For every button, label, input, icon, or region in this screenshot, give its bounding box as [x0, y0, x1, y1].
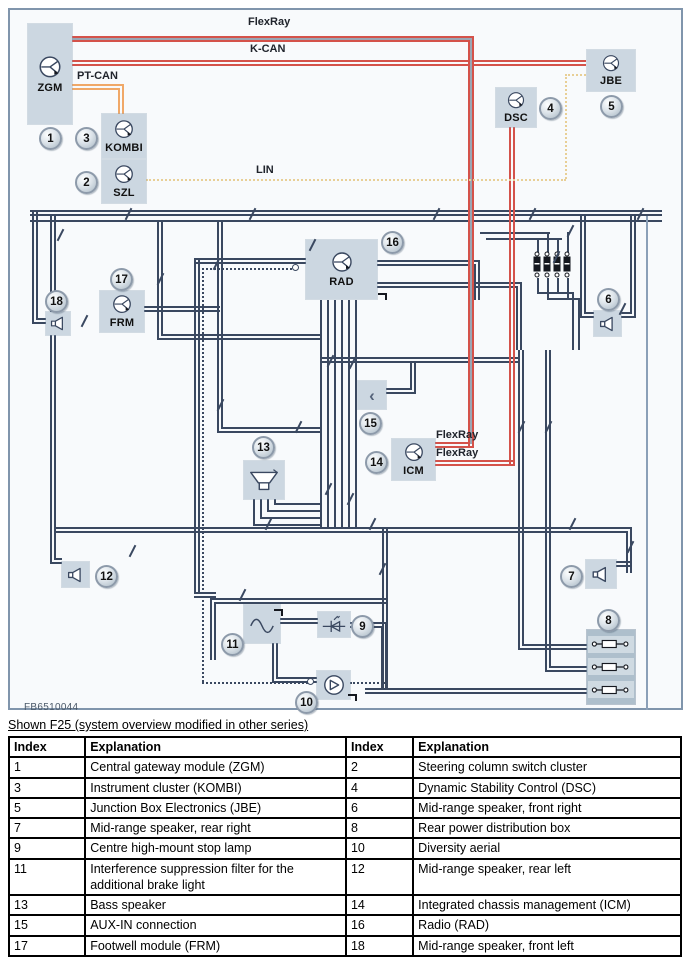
- explanation-cell: Mid-range speaker, rear left: [413, 859, 681, 896]
- fuse-row: [588, 636, 634, 653]
- control-unit-icon: [111, 294, 133, 316]
- index-cell: 8: [346, 818, 413, 838]
- index-cell: 9: [9, 838, 85, 858]
- sine-wave-icon: [248, 612, 276, 636]
- index-cell: 5: [9, 798, 85, 818]
- fuse-icon: [589, 683, 633, 697]
- explanation-cell: Integrated chassis management (ICM): [413, 895, 681, 915]
- wire-segment: [545, 350, 587, 672]
- wire-segment: [486, 238, 562, 240]
- wire-segment: [377, 282, 522, 350]
- wire-segment: [434, 460, 515, 466]
- explanation-cell: Dynamic Stability Control (DSC): [413, 778, 681, 798]
- legend-table: IndexExplanationIndexExplanation 1Centra…: [8, 736, 682, 957]
- wire-segment: [557, 278, 559, 292]
- control-unit-icon: [403, 442, 425, 464]
- index-badge-9: 9: [351, 615, 374, 638]
- index-cell: 6: [346, 798, 413, 818]
- module-rad: RAD: [306, 240, 377, 299]
- amplifier-icon: [321, 673, 347, 697]
- speaker-icon: [66, 566, 86, 584]
- wire-segment: [157, 222, 320, 340]
- figure-id: FB6510044: [24, 702, 78, 713]
- module-jbe: JBE: [587, 50, 635, 91]
- explanation-cell: Mid-range speaker, front left: [413, 936, 681, 956]
- index-badge-3: 3: [75, 127, 98, 150]
- explanation-cell: Instrument cluster (KOMBI): [85, 778, 346, 798]
- module-kombi: KOMBI: [102, 114, 146, 158]
- bus-label-kcan: K-CAN: [250, 43, 285, 55]
- wire-segment: [202, 268, 204, 682]
- speaker-rear-left: [62, 562, 89, 587]
- aux-in-connector: ‹: [358, 381, 386, 409]
- wire-segment: [334, 300, 336, 527]
- bass-speaker-icon: [247, 465, 281, 495]
- table-row: 3Instrument cluster (KOMBI)4Dynamic Stab…: [9, 778, 681, 798]
- index-badge-2: 2: [75, 171, 98, 194]
- module-label: KOMBI: [105, 142, 143, 154]
- wire-segment: [567, 278, 569, 298]
- index-cell: 15: [9, 915, 85, 935]
- module-szl: SZL: [102, 160, 146, 203]
- wire-segment: [202, 682, 308, 684]
- table-row: 7Mid-range speaker, rear right8Rear powe…: [9, 818, 681, 838]
- explanation-cell: Centre high-mount stop lamp: [85, 838, 346, 858]
- index-cell: 13: [9, 895, 85, 915]
- index-badge-1: 1: [39, 127, 62, 150]
- wire-segment: [615, 561, 632, 567]
- table-row: 11Interference suppression filter for th…: [9, 859, 681, 896]
- bus-label-icm-flexray-upper: FlexRay: [436, 429, 478, 441]
- wire-segment: [194, 258, 200, 592]
- wire-segment: [537, 278, 539, 292]
- wire-segment: [146, 179, 566, 181]
- figure-caption: Shown F25 (system overview modified in o…: [8, 718, 308, 732]
- wire-segment: [72, 38, 470, 40]
- wire-terminal: [292, 264, 299, 271]
- module-label: ZGM: [37, 82, 62, 94]
- explanation-cell: Radio (RAD): [413, 915, 681, 935]
- index-badge-10: 10: [295, 691, 318, 714]
- wire-crossing-mark: [81, 315, 89, 327]
- table-row: 9Centre high-mount stop lamp10Diversity …: [9, 838, 681, 858]
- wire-crossing-mark: [567, 225, 575, 237]
- wire-segment: [32, 212, 46, 324]
- index-cell: 11: [9, 859, 85, 896]
- explanation-cell: Steering column switch cluster: [413, 757, 681, 777]
- index-badge-12: 12: [95, 565, 118, 588]
- wire-segment: [537, 292, 572, 294]
- index-cell: 14: [346, 895, 413, 915]
- wire-segment: [320, 300, 322, 527]
- index-cell: 10: [346, 838, 413, 858]
- connector-bracket-mark: [348, 694, 357, 701]
- control-unit-icon: [330, 251, 354, 275]
- wire-segment: [565, 74, 586, 76]
- fuse-row: [588, 681, 634, 698]
- speaker-front-left: [46, 312, 70, 335]
- wire-segment: [578, 298, 580, 350]
- wire-segment: [202, 268, 292, 270]
- explanation-cell: Central gateway module (ZGM): [85, 757, 346, 777]
- index-cell: 4: [346, 778, 413, 798]
- index-badge-14: 14: [365, 451, 388, 474]
- control-unit-icon: [506, 91, 526, 111]
- index-badge-16: 16: [381, 231, 404, 254]
- explanation-cell: Mid-range speaker, front right: [413, 798, 681, 818]
- index-badge-8: 8: [597, 609, 620, 632]
- wire-segment: [355, 300, 357, 527]
- wire-segment: [547, 278, 549, 298]
- wire-segment: [272, 643, 317, 683]
- explanation-cell: Interference suppression filter for the …: [85, 859, 346, 896]
- index-cell: 7: [9, 818, 85, 838]
- module-label: RAD: [329, 276, 353, 288]
- bus-label-icm-flexray-lower: FlexRay: [436, 447, 478, 459]
- module-label: SZL: [113, 187, 134, 199]
- control-unit-icon: [601, 54, 621, 74]
- wire-segment: [72, 60, 586, 66]
- control-unit-icon: [113, 164, 135, 186]
- explanation-cell: Rear power distribution box: [413, 818, 681, 838]
- module-label: ICM: [403, 465, 424, 477]
- page: FlexRay K-CAN PT-CAN LIN FlexRay FlexRay…: [0, 0, 690, 957]
- fuse-row: [588, 658, 634, 675]
- wire-segment: [480, 232, 550, 234]
- wire-segment: [509, 126, 515, 466]
- stop-lamp: [318, 612, 350, 637]
- wire-segment: [620, 216, 636, 318]
- wire-segment: [580, 216, 595, 318]
- module-frm: FRM: [100, 291, 144, 332]
- fuse-icon: [589, 637, 633, 651]
- system-diagram-panel: FlexRay K-CAN PT-CAN LIN FlexRay FlexRay…: [8, 8, 683, 710]
- rear-power-distribution-box: [587, 630, 635, 704]
- control-unit-icon: [113, 119, 135, 141]
- speaker-icon: [590, 565, 612, 584]
- module-label: DSC: [504, 112, 528, 124]
- index-cell: 16: [346, 915, 413, 935]
- legend-table-body: 1Central gateway module (ZGM)2Steering c…: [9, 757, 681, 956]
- header-row: IndexExplanationIndexExplanation: [9, 737, 681, 757]
- index-badge-13: 13: [252, 436, 275, 459]
- explanation-cell: AUX-IN connection: [85, 915, 346, 935]
- index-badge-6: 6: [597, 288, 620, 311]
- bus-label-flexray: FlexRay: [248, 16, 290, 28]
- explanation-cell: Junction Box Electronics (JBE): [85, 798, 346, 818]
- explanation-cell: Mid-range speaker, rear right: [85, 818, 346, 838]
- wire-terminal: [307, 678, 314, 685]
- index-header: Index: [9, 737, 85, 757]
- index-cell: 2: [346, 757, 413, 777]
- index-cell: 3: [9, 778, 85, 798]
- wire-segment: [365, 688, 587, 694]
- table-row: 17Footwell module (FRM)18Mid-range speak…: [9, 936, 681, 956]
- connector-bracket-mark: [378, 293, 387, 300]
- led-diode-icon: [320, 615, 348, 634]
- module-zgm: ZGM: [28, 24, 72, 124]
- index-badge-7: 7: [560, 565, 583, 588]
- bass-speaker: [244, 461, 284, 499]
- index-badge-18: 18: [45, 290, 68, 313]
- wire-segment: [565, 74, 567, 179]
- connector-fuse-group-icon: [531, 251, 575, 279]
- connector-bracket-mark: [274, 609, 283, 616]
- wire-segment: [470, 38, 472, 444]
- index-cell: 17: [9, 936, 85, 956]
- explanation-header: Explanation: [413, 737, 681, 757]
- wire-segment: [30, 220, 662, 222]
- wire-segment: [50, 216, 62, 564]
- table-row: 5Junction Box Electronics (JBE)6Mid-rang…: [9, 798, 681, 818]
- explanation-cell: Footwell module (FRM): [85, 936, 346, 956]
- wire-segment: [194, 258, 306, 264]
- legend-table-head: IndexExplanationIndexExplanation: [9, 737, 681, 757]
- wire-segment: [386, 362, 416, 394]
- wire-segment: [341, 300, 343, 527]
- index-badge-11: 11: [221, 633, 244, 656]
- explanation-cell: Diversity aerial: [413, 838, 681, 858]
- wire-segment: [646, 216, 648, 710]
- index-cell: 1: [9, 757, 85, 777]
- index-cell: 12: [346, 859, 413, 896]
- index-badge-17: 17: [110, 268, 133, 291]
- wire-segment: [320, 357, 520, 363]
- explanation-cell: Bass speaker: [85, 895, 346, 915]
- module-dsc: DSC: [496, 88, 536, 127]
- aux-jack-icon: ‹: [369, 387, 375, 404]
- table-row: 15AUX-IN connection16Radio (RAD): [9, 915, 681, 935]
- speaker-icon: [49, 315, 68, 332]
- speaker-front-right: [594, 311, 621, 336]
- speaker-rear-right: [586, 560, 616, 588]
- module-label: JBE: [600, 75, 622, 87]
- explanation-header: Explanation: [85, 737, 346, 757]
- wire-segment: [30, 210, 662, 216]
- wire-segment: [274, 498, 320, 505]
- bus-label-ptcan: PT-CAN: [77, 70, 118, 82]
- table-row: 1Central gateway module (ZGM)2Steering c…: [9, 757, 681, 777]
- diversity-aerial-amplifier: [317, 671, 350, 699]
- wire-segment: [350, 682, 386, 684]
- table-row: 13Bass speaker14Integrated chassis manag…: [9, 895, 681, 915]
- control-unit-icon: [37, 55, 63, 81]
- module-icm: ICM: [392, 439, 435, 480]
- index-header: Index: [346, 737, 413, 757]
- wire-segment: [194, 592, 216, 598]
- index-badge-4: 4: [539, 97, 562, 120]
- index-badge-5: 5: [600, 95, 623, 118]
- index-badge-15: 15: [359, 412, 382, 435]
- fuse-icon: [589, 660, 633, 674]
- module-label: FRM: [110, 317, 134, 329]
- speaker-icon: [598, 315, 618, 333]
- wire-segment: [280, 618, 318, 624]
- wire-segment: [348, 300, 350, 527]
- bus-label-lin: LIN: [256, 164, 274, 176]
- wire-segment: [72, 84, 124, 115]
- wire-segment: [572, 292, 574, 350]
- index-cell: 18: [346, 936, 413, 956]
